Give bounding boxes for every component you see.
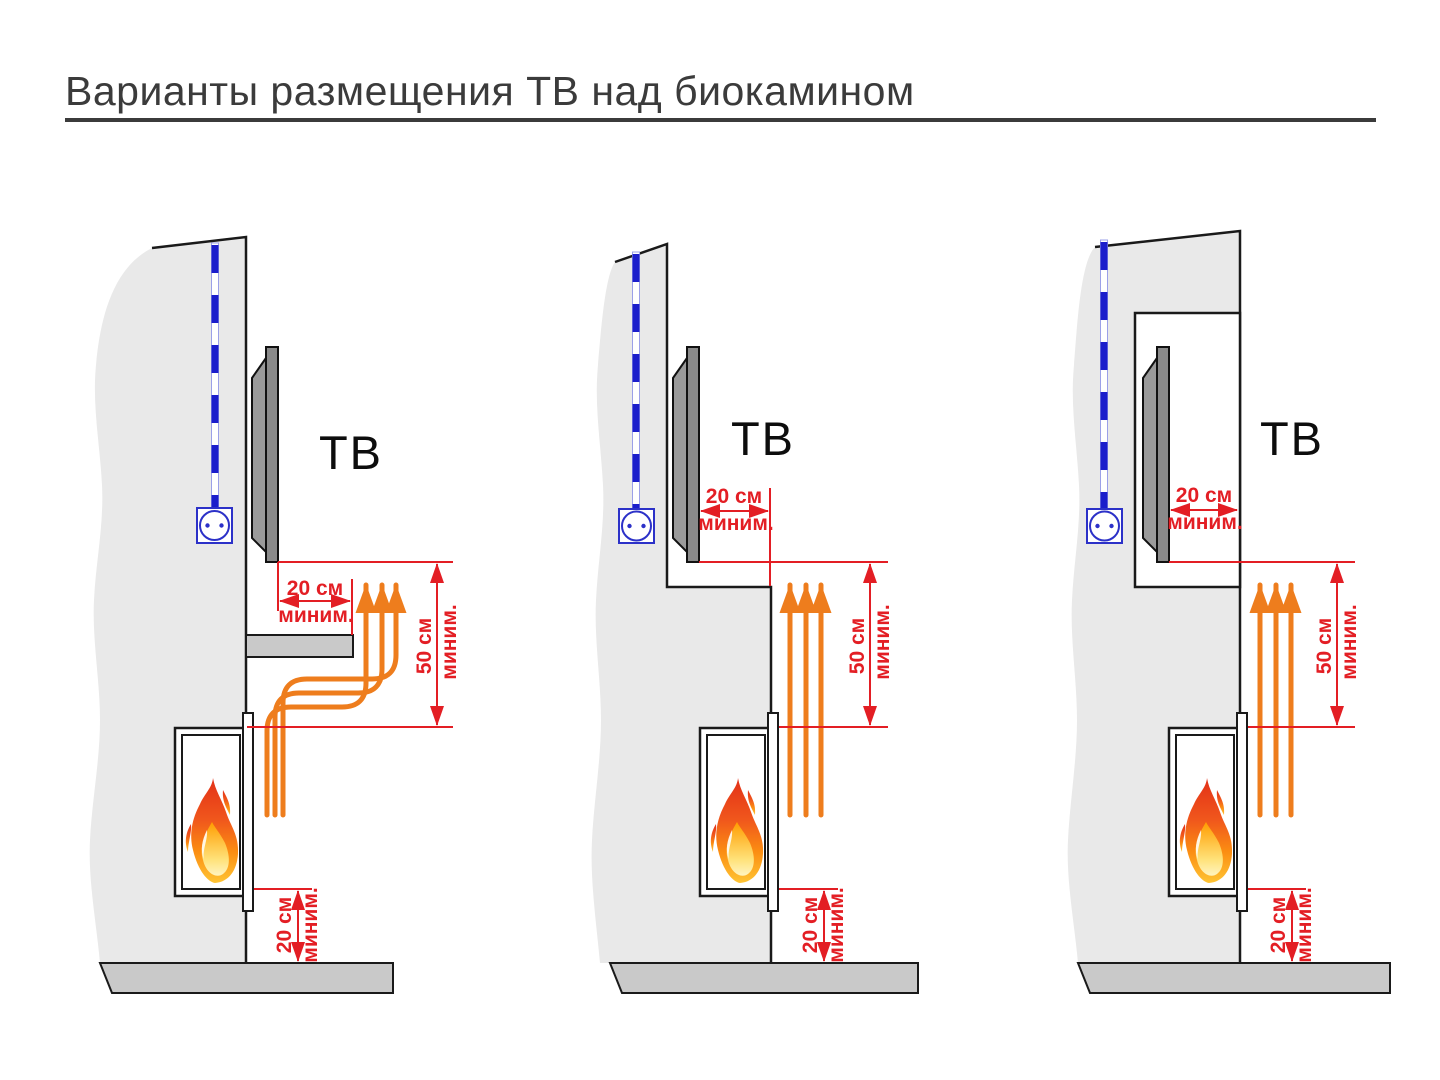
heat-flow-arrows	[790, 585, 821, 815]
floor-clearance-qualifier: миним.	[825, 887, 848, 962]
variant-3-niche-diagram: ТВ 20 см миним. 50 см миним.	[1068, 231, 1390, 993]
side-clearance-value: 20 см	[706, 485, 762, 508]
tv-side-view	[1143, 347, 1169, 562]
side-clearance-value: 20 см	[287, 577, 343, 600]
fireplace-tv-placement-diagram: ТВ 20 см миним. 50 с	[0, 0, 1440, 1080]
vertical-clearance-value: 50 см	[1313, 618, 1336, 674]
variant-1-shelf-diagram: ТВ 20 см миним. 50 с	[90, 237, 461, 993]
shelf	[246, 635, 353, 657]
floor-slab	[100, 963, 393, 993]
power-outlet-icon	[197, 508, 232, 543]
tv-label: ТВ	[731, 412, 795, 465]
floor-clearance-qualifier: миним.	[299, 887, 322, 962]
tv-side-view	[673, 347, 699, 562]
tv-label: ТВ	[1260, 412, 1324, 465]
diagram-page: Варианты размещения ТВ над биокамином	[0, 0, 1440, 1080]
power-outlet-icon	[619, 509, 654, 543]
fireplace	[175, 713, 253, 911]
dimension-annotations: 20 см миним. 50 см миним. 20 см миним.	[247, 562, 461, 963]
side-clearance-value: 20 см	[1176, 484, 1232, 507]
vertical-clearance-qualifier: миним.	[1338, 604, 1361, 679]
power-outlet-icon	[1087, 509, 1122, 543]
fireplace-front-frame	[243, 713, 253, 911]
tv-side-view	[252, 347, 278, 562]
floor-clearance-value: 20 см	[273, 897, 296, 953]
floor-clearance-qualifier: миним.	[1293, 887, 1316, 962]
vertical-clearance-value: 50 см	[846, 618, 869, 674]
heat-flow-arrows	[1260, 585, 1291, 815]
fireplace	[1169, 713, 1247, 911]
variant-2-step-diagram: ТВ 20 см миним. 50 см	[592, 244, 918, 993]
vertical-clearance-qualifier: миним.	[871, 604, 894, 679]
floor-clearance-value: 20 см	[1267, 897, 1290, 953]
vertical-clearance-qualifier: миним.	[438, 604, 461, 679]
side-clearance-qualifier: миним.	[1167, 511, 1242, 534]
floor-slab	[1078, 963, 1390, 993]
fireplace	[700, 713, 778, 911]
vertical-clearance-value: 50 см	[413, 618, 436, 674]
side-clearance-qualifier: миним.	[698, 512, 773, 535]
tv-label: ТВ	[319, 426, 383, 479]
fireplace-front-frame	[1237, 713, 1247, 911]
floor-slab	[610, 963, 918, 993]
side-clearance-qualifier: миним.	[278, 604, 353, 627]
fireplace-front-frame	[768, 713, 778, 911]
floor-clearance-value: 20 см	[799, 897, 822, 953]
